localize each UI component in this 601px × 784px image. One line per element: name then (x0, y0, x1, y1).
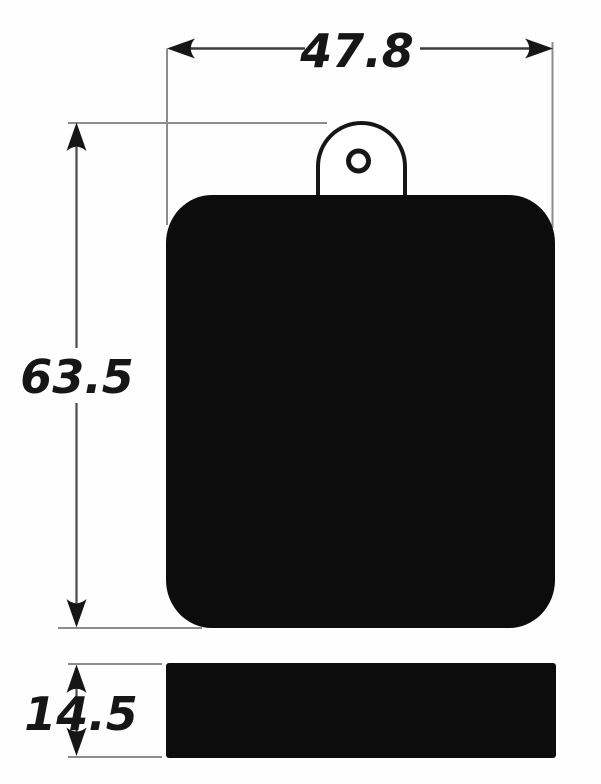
pad-side-view (166, 663, 556, 758)
mounting-tab-hole (349, 151, 369, 171)
pad-side-silhouette (166, 663, 556, 758)
height-dimension-label: 63.5 (20, 354, 134, 400)
thickness-dimension-label: 14.5 (24, 691, 138, 737)
technical-drawing-canvas: 47.8 63.5 14.5 (0, 0, 601, 784)
width-dimension-label: 47.8 (300, 28, 414, 74)
pad-body-silhouette (166, 195, 555, 628)
pad-front-view (166, 123, 555, 628)
arrowhead-down-icon (67, 599, 87, 628)
arrowhead-up-icon (67, 123, 87, 152)
